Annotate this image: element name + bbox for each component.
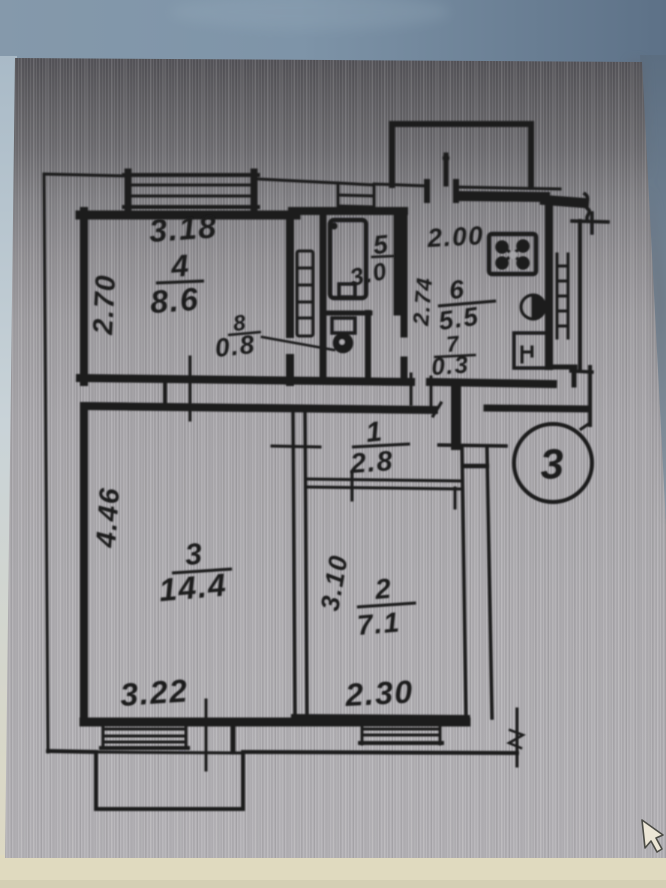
svg-text:8.6: 8.6	[149, 281, 200, 320]
svg-text:2.74: 2.74	[408, 276, 437, 328]
svg-text:3: 3	[539, 440, 566, 488]
svg-text:3.22: 3.22	[119, 672, 190, 713]
svg-text:2.00: 2.00	[426, 220, 485, 253]
svg-text:14.4: 14.4	[157, 566, 228, 608]
svg-text:0.8: 0.8	[213, 329, 257, 363]
svg-text:2.70: 2.70	[87, 273, 121, 336]
svg-text:4: 4	[169, 248, 191, 284]
svg-text:1: 1	[364, 415, 384, 448]
svg-text:4.46: 4.46	[90, 486, 125, 550]
svg-text:0.3: 0.3	[431, 351, 471, 381]
svg-text:3.18: 3.18	[148, 208, 219, 249]
svg-text:3: 3	[184, 538, 205, 572]
svg-text:2: 2	[373, 573, 394, 605]
svg-text:7.1: 7.1	[356, 606, 402, 641]
svg-text:2.8: 2.8	[348, 445, 394, 479]
svg-text:2.30: 2.30	[343, 673, 414, 713]
svg-text:6: 6	[448, 274, 467, 305]
